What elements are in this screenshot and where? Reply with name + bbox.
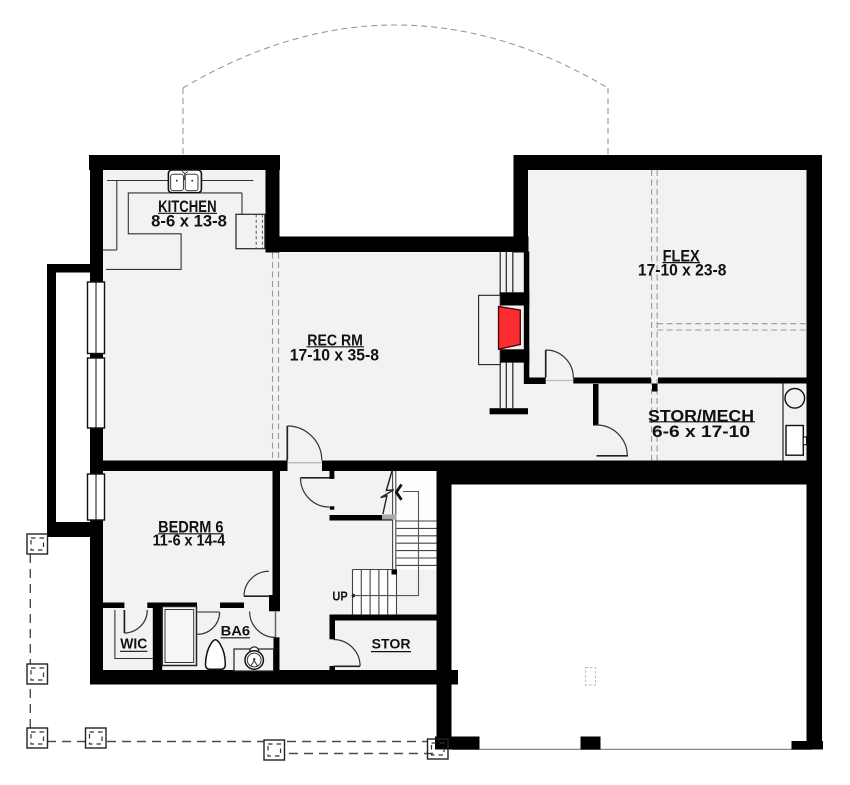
- svg-text:17-10 x 35-8: 17-10 x 35-8: [290, 346, 379, 364]
- svg-text:8-6 x 13-8: 8-6 x 13-8: [151, 213, 227, 231]
- svg-text:STOR: STOR: [372, 637, 411, 652]
- svg-text:UP: UP: [332, 589, 348, 604]
- svg-text:11-6 x 14-4: 11-6 x 14-4: [153, 532, 226, 549]
- svg-text:6-6 x 17-10: 6-6 x 17-10: [652, 423, 750, 441]
- svg-text:BA6: BA6: [221, 622, 251, 638]
- svg-text:WIC: WIC: [120, 636, 147, 653]
- svg-text:17-10 x 23-8: 17-10 x 23-8: [638, 261, 727, 279]
